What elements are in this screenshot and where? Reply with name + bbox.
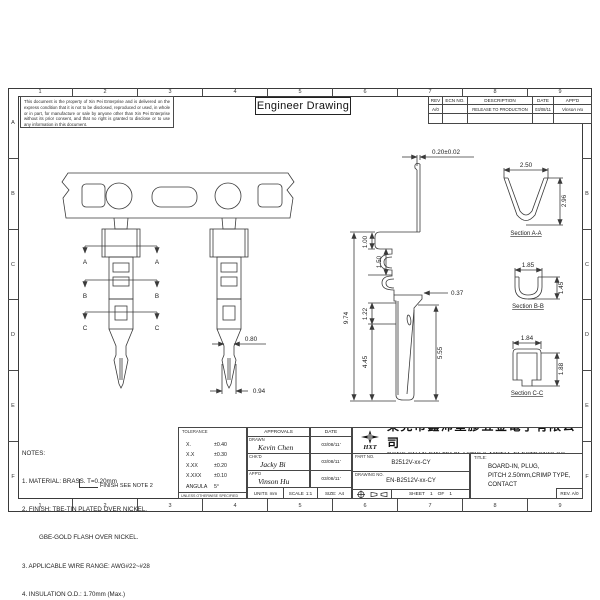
grid-col: 4: [203, 499, 268, 512]
dim-text-9-74: 9.74: [343, 311, 350, 324]
drawn-label: DRAWN: [249, 437, 265, 442]
units-label: UNITS: [254, 491, 268, 496]
grid-col-label: 9: [558, 503, 561, 509]
dim-text-aa-width: 2.50: [520, 162, 533, 169]
appd-label: APP'D: [249, 471, 261, 476]
company-logo: HXT: [353, 430, 387, 451]
section-marker-b-right: B: [155, 293, 159, 300]
scale-label: SCALE: [289, 491, 304, 496]
grid-row-label: B: [585, 191, 589, 197]
scale-cell: SCALE 1:1: [283, 487, 318, 499]
grid-row-label: C: [11, 262, 15, 268]
star-logo-icon: [361, 430, 379, 444]
section-line-C: [85, 312, 157, 319]
grid-row: E: [8, 371, 18, 442]
part-no-label: PART NO.: [355, 454, 374, 459]
dim-text-4-45: 4.45: [362, 355, 369, 368]
border-band-top: 1 2 3 4 5 6 7 8 9: [8, 88, 592, 96]
dim-5-55: [414, 305, 439, 401]
grid-row-label: D: [11, 332, 15, 338]
grid-col: 5: [268, 88, 333, 96]
grid-col: 6: [333, 499, 398, 512]
grid-col-label: 6: [363, 503, 366, 509]
dim-text-bb-width: 1.85: [522, 262, 535, 269]
dim-text-tip-width: 0.94: [253, 388, 266, 395]
terminal-front-view: [210, 218, 248, 388]
notes-block: NOTES: 1. MATERIAL: BRASS. T=0.20mm 2. F…: [22, 430, 187, 600]
dim-tip-width: [210, 364, 248, 394]
grid-col: 7: [398, 499, 463, 512]
notes-heading: NOTES:: [22, 449, 187, 458]
pilot-hole: [215, 183, 241, 209]
section-aa-label: Section A-A: [510, 231, 541, 237]
grid-col: 8: [463, 88, 528, 96]
terminal-front-view: [102, 218, 140, 388]
sheet-of-label: OF: [438, 492, 445, 497]
grid-row-label: F: [585, 474, 588, 480]
tolerance-footer: UNLESS OTHERWISE SPECIFIED: [181, 494, 238, 498]
section-marker-a-right: A: [155, 259, 160, 266]
tol-key: ANGULA: [186, 482, 207, 492]
tolerance-keys: X. X.X X.XX X.XXX ANGULA: [186, 440, 207, 492]
grid-row: C: [8, 230, 18, 301]
company-cell: HXT 東莞市鑫沛塑膠五金電子有限公司 DONG GUAN XIN PEI PL…: [352, 427, 583, 454]
grid-col-label: 8: [493, 503, 496, 509]
grid-col: 2: [73, 88, 138, 96]
tol-key: X.XXX: [186, 471, 207, 481]
note-line: GBE-GOLD FLASH OVER NICKEL.: [22, 533, 187, 542]
drawn-signature: Kevin Chen: [258, 443, 293, 452]
dim-text-0-37: 0.37: [451, 290, 464, 297]
section-view-AA: [504, 168, 563, 225]
grid-col: 7: [398, 88, 463, 96]
chkd-signature: Jacky Bi: [260, 460, 286, 469]
grid-row-label: B: [11, 191, 15, 197]
company-name-cn: 東莞市鑫沛塑膠五金電子有限公司: [387, 427, 582, 451]
section-view-BB: [515, 268, 560, 299]
tol-value: ±0.20: [214, 461, 227, 471]
pilot-hole: [106, 183, 132, 209]
grid-col-label: 1: [38, 89, 41, 95]
sheet-num: 1: [430, 492, 433, 497]
grid-col-label: 7: [428, 503, 431, 509]
chkd-label: CHK'D: [249, 454, 262, 459]
grid-row-label: E: [11, 403, 15, 409]
rev-badge: REV. A/0: [556, 488, 583, 499]
tolerance-heading: TOLERANCE: [182, 429, 208, 434]
grid-col-label: 8: [493, 89, 496, 95]
dim-text-thickness: 0.20±0.02: [432, 149, 460, 156]
dim-text-cc-width: 1.84: [521, 335, 534, 342]
section-line-A: [85, 246, 157, 253]
size-cell: SIZE: A4: [317, 487, 352, 499]
grid-row: F: [8, 442, 18, 512]
grid-row: A: [8, 88, 18, 159]
grid-row: B: [8, 159, 18, 230]
grid-row-label: E: [585, 403, 589, 409]
title-line: PITCH 2.50mm,CRIMP TYPE,: [488, 471, 570, 480]
tol-key: X.: [186, 440, 207, 450]
grid-row-label: A: [11, 120, 15, 126]
engineering-drawing-sheet: 1 2 3 4 5 6 7 8 9 1 2 3 4 5 6 7 8 9 A B …: [0, 0, 600, 600]
dim-text-bb-height: 1.45: [558, 281, 565, 294]
grid-row: D: [8, 300, 18, 371]
part-no-value: B2512V-xx-CY: [391, 460, 430, 466]
units-cell: UNITS mm: [247, 487, 284, 499]
projection-symbol-icon: [356, 490, 388, 499]
note-line: 3. APPLICABLE WIRE RANGE: AWG#22~#28: [22, 562, 187, 571]
grid-col-label: 6: [363, 89, 366, 95]
projection-cell: [352, 489, 392, 499]
grid-col-label: 9: [558, 89, 561, 95]
section-marker-c-left: C: [83, 325, 88, 332]
title-line: BOARD-IN, PLUG,: [488, 462, 570, 471]
grid-col-label: 5: [298, 89, 301, 95]
tol-value: ±0.40: [214, 440, 227, 450]
note-line: 2. FINISH: TBE-TIN PLATED OVER NICKEL.: [22, 505, 187, 514]
grid-col-label: 5: [298, 503, 301, 509]
grid-col: 3: [138, 88, 203, 96]
grid-col: 4: [203, 88, 268, 96]
grid-col-label: 4: [233, 503, 236, 509]
units-value: mm: [270, 491, 278, 496]
dim-text-5-55: 5.55: [437, 346, 444, 359]
drawing-views: A A B B C C 0.80 0.94 0.20±0.02 9.74 1.0…: [18, 96, 583, 429]
tol-value: ±0.10: [214, 471, 227, 481]
chkd-date: 03/08/11': [310, 453, 352, 471]
section-marker-a-left: A: [83, 259, 88, 266]
dim-thickness: [402, 155, 474, 166]
sheet-label: SHEET: [409, 492, 425, 497]
note-line: 4. INSULATION O.D.: 1.70mm (Max.): [22, 590, 187, 599]
dim-text-1-50: 1.50: [376, 255, 383, 268]
terminal-side-view: [375, 164, 422, 401]
grid-col: 6: [333, 88, 398, 96]
dim-text-aa-height: 2.96: [561, 194, 568, 207]
sheet-cell: SHEET 1 OF 1: [391, 489, 470, 499]
size-value: A4: [338, 491, 344, 496]
grid-row: C: [582, 230, 592, 301]
section-view-CC: [513, 341, 560, 386]
grid-col-label: 3: [168, 89, 171, 95]
tol-key: X.XX: [186, 461, 207, 471]
grid-row: E: [582, 371, 592, 442]
grid-row: D: [582, 300, 592, 371]
grid-row-label: D: [585, 332, 589, 338]
grid-row: F: [582, 442, 592, 512]
scale-value: 1:1: [306, 491, 312, 496]
tol-value: 5°: [214, 482, 227, 492]
tolerance-values: ±0.40 ±0.30 ±0.20 ±0.10 5°: [214, 440, 227, 492]
dim-text-cc-height: 1.88: [558, 362, 565, 375]
sheet-total: 1: [449, 492, 452, 497]
drawing-no-label: DRAWING NO.: [355, 472, 384, 477]
dim-text-pin-width: 0.80: [245, 336, 258, 343]
grid-col: 8: [463, 499, 528, 512]
grid-row-label: C: [585, 262, 589, 268]
grid-row: B: [582, 159, 592, 230]
grid-col-label: 7: [428, 89, 431, 95]
border-band-right: A B C D E F: [582, 88, 592, 512]
note-callout-text: FINISH SEE NOTE 2: [100, 483, 153, 489]
drawn-date: 03/08/11': [310, 436, 352, 454]
drawing-no-value: EN-B2512V-xx-CY: [386, 478, 436, 484]
dim-1-22: [368, 303, 396, 324]
section-marker-c-right: C: [155, 325, 160, 332]
grid-row-label: F: [11, 474, 14, 480]
section-cc-label: Section C-C: [511, 391, 544, 397]
appd-date: 03/08/11': [310, 470, 352, 488]
section-marker-b-left: B: [83, 293, 87, 300]
note-callout-leader: [79, 479, 98, 488]
border-band-left: A B C D E F: [8, 88, 18, 512]
grid-col-label: 4: [233, 89, 236, 95]
tol-key: X.X: [186, 450, 207, 460]
size-label: SIZE:: [325, 491, 337, 496]
tol-value: ±0.30: [214, 450, 227, 460]
dim-text-1-22: 1.22: [362, 307, 369, 320]
appd-signature: Vinson Hu: [258, 477, 289, 486]
grid-col: 5: [268, 499, 333, 512]
grid-col-label: 2: [103, 89, 106, 95]
logo-text: HXT: [363, 444, 376, 451]
carrier-strip: [62, 173, 294, 218]
section-bb-label: Section B-B: [512, 304, 544, 310]
dim-text-1-00: 1.00: [362, 235, 369, 248]
